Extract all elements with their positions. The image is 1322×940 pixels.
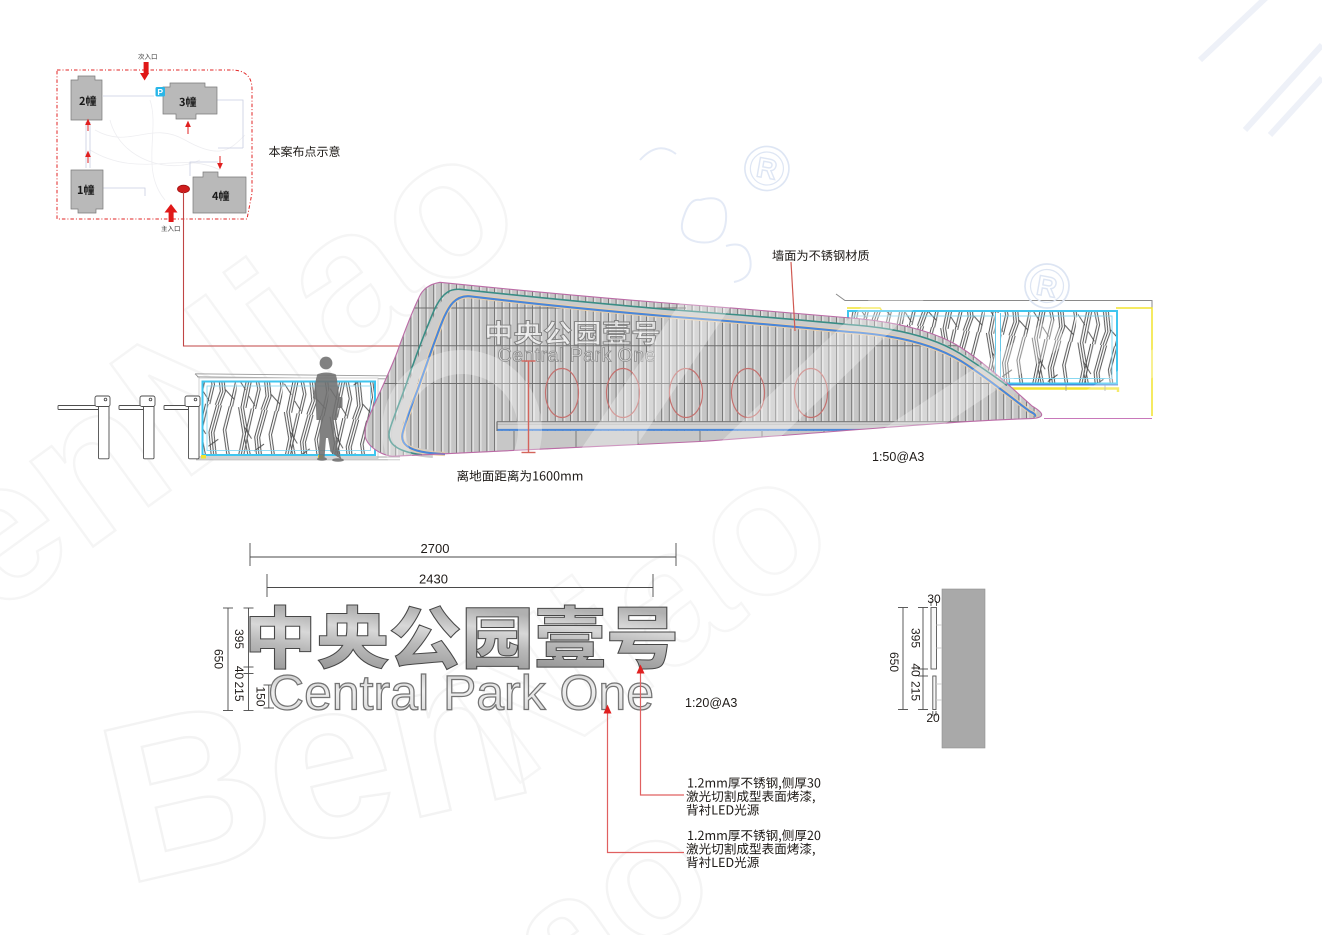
svg-text:215: 215 (909, 681, 923, 701)
svg-text:150: 150 (254, 686, 268, 706)
svg-text:Central Park One: Central Park One (498, 345, 656, 367)
svg-text:40: 40 (909, 663, 923, 677)
svg-text:30: 30 (927, 592, 941, 606)
svg-text:2700: 2700 (421, 541, 450, 556)
svg-text:P: P (157, 87, 163, 97)
svg-text:2430: 2430 (419, 572, 448, 587)
svg-text:395: 395 (909, 628, 923, 648)
svg-text:R: R (1034, 269, 1059, 303)
svg-text:650: 650 (887, 652, 901, 672)
svg-text:1:20@A3: 1:20@A3 (685, 696, 737, 710)
svg-text:1:50@A3: 1:50@A3 (872, 450, 924, 464)
svg-text:20: 20 (926, 711, 940, 725)
svg-text:R: R (754, 151, 779, 185)
svg-text:215: 215 (232, 681, 246, 701)
svg-text:395: 395 (232, 629, 246, 649)
svg-text:40: 40 (232, 666, 246, 680)
svg-text:650: 650 (212, 649, 226, 669)
svg-text:Central Park One: Central Park One (268, 666, 654, 721)
